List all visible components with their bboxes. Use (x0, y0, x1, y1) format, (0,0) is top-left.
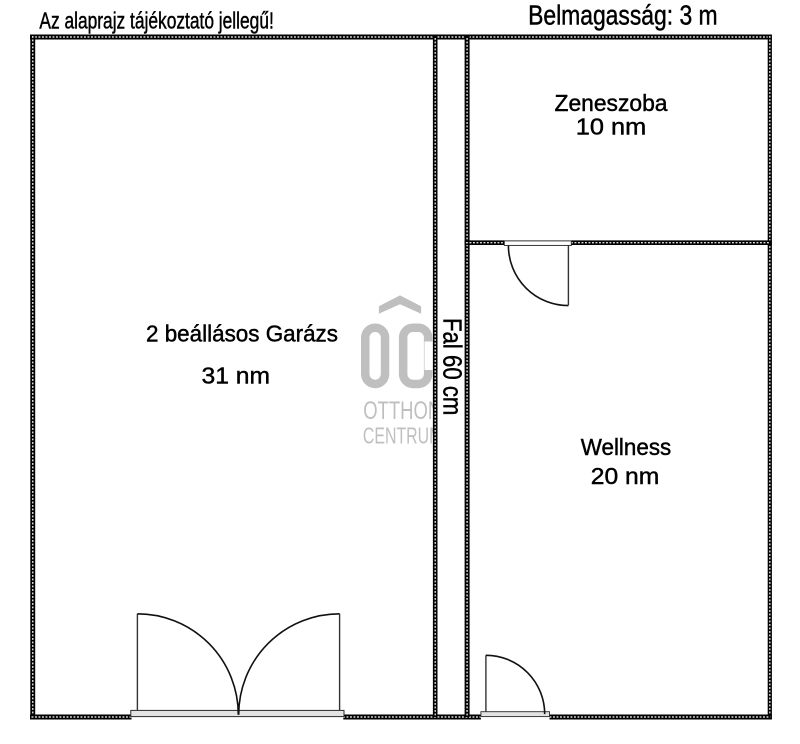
svg-text:10 nm: 10 nm (576, 114, 647, 140)
svg-text:Wellness: Wellness (581, 434, 672, 460)
svg-text:CENTRUM: CENTRUM (363, 422, 443, 448)
svg-text:Zeneszoba: Zeneszoba (555, 90, 668, 116)
svg-text:Az alaprajz tájékoztató jelleg: Az alaprajz tájékoztató jellegű! (39, 7, 273, 33)
svg-text:31 nm: 31 nm (202, 362, 271, 388)
svg-text:Fal 60 cm: Fal 60 cm (437, 318, 465, 415)
svg-text:OTTHON: OTTHON (363, 397, 441, 425)
svg-text:2 beállásos Garázs: 2 beállásos Garázs (146, 321, 338, 347)
svg-text:Belmagasság: 3 m: Belmagasság: 3 m (528, 0, 718, 30)
svg-text:20 nm: 20 nm (591, 463, 660, 489)
